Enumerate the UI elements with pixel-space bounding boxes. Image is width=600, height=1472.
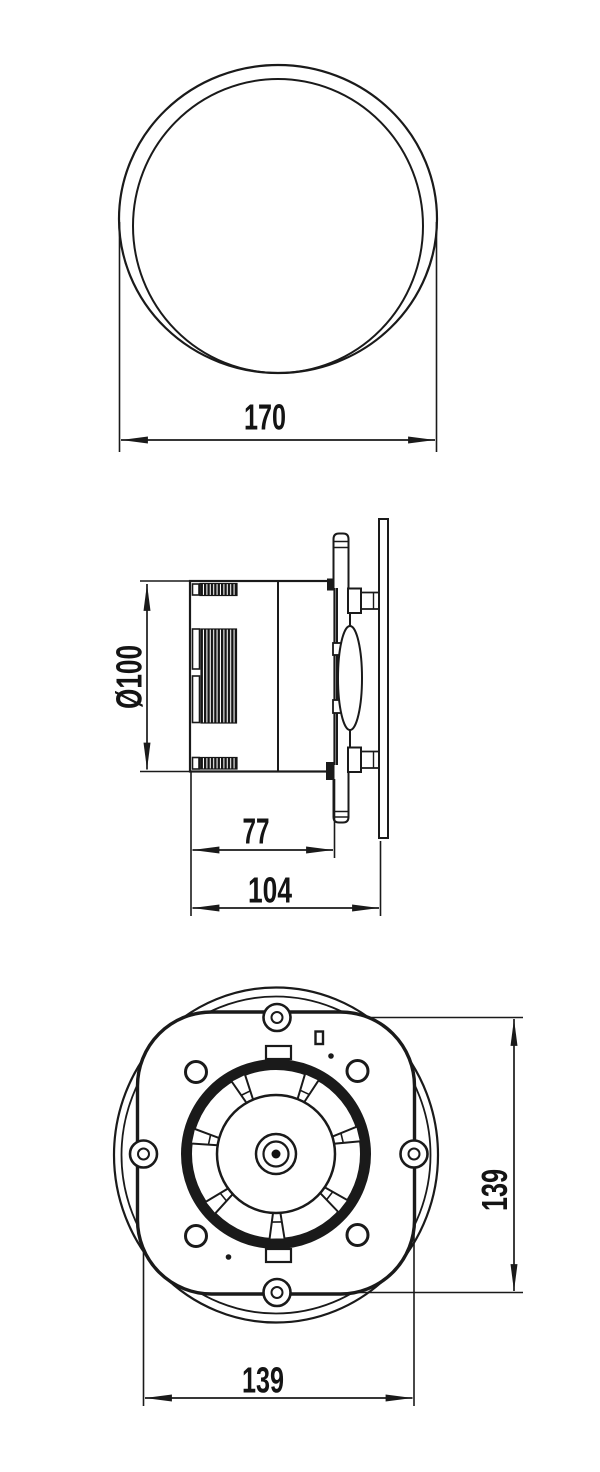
drawing-sheet: 170: [0, 0, 600, 1472]
dimension-label-104: 104: [248, 870, 292, 911]
rib-box-top: [193, 584, 200, 595]
front-view: 170: [119, 65, 437, 452]
side-view: Ø100 77 104: [109, 519, 389, 916]
mounting-screw-right: [401, 1141, 428, 1168]
shaft-center: [272, 1150, 281, 1159]
dimension-label-170: 170: [244, 397, 286, 438]
pilot-dot-bottom: [226, 1254, 232, 1260]
motor-label-hatch: [201, 629, 237, 723]
ring-tab-top: [266, 1046, 291, 1059]
bezel-cap-bottom: [334, 765, 349, 823]
pilot-dot-top: [328, 1053, 334, 1059]
dimension-label-d100: Ø100: [109, 645, 150, 709]
mounting-screw-left: [130, 1141, 157, 1168]
label-edge-upper: [193, 629, 200, 669]
rib-hatch-bottom: [200, 758, 237, 770]
plate-hole-sw: [186, 1226, 207, 1247]
rib-box-bottom: [193, 758, 200, 770]
face-plate: [379, 519, 388, 838]
rear-view: 139 139: [114, 988, 523, 1407]
dimension-label-139-vertical: 139: [474, 1169, 515, 1211]
bezel-dome: [338, 626, 362, 730]
label-edge-lower: [193, 676, 200, 723]
rib-hatch-top: [200, 584, 237, 596]
ring-tab-bottom: [266, 1249, 291, 1262]
cable-slot: [316, 1032, 324, 1045]
mounting-screw-bottom: [264, 1279, 291, 1306]
dimension-label-139-horizontal: 139: [242, 1360, 284, 1401]
plate-hole-nw: [186, 1062, 207, 1083]
plate-hole-ne: [347, 1061, 368, 1082]
bezel-inner-rim: [133, 79, 423, 373]
screw-boss-top: [348, 589, 361, 614]
screw-boss-bottom: [348, 748, 361, 773]
mounting-screw-top: [264, 1004, 291, 1031]
bezel-outer-rim: [119, 65, 437, 373]
fan-technical-drawing: 170: [0, 0, 600, 1472]
plate-hole-se: [347, 1225, 368, 1246]
dimension-label-77: 77: [243, 811, 270, 852]
